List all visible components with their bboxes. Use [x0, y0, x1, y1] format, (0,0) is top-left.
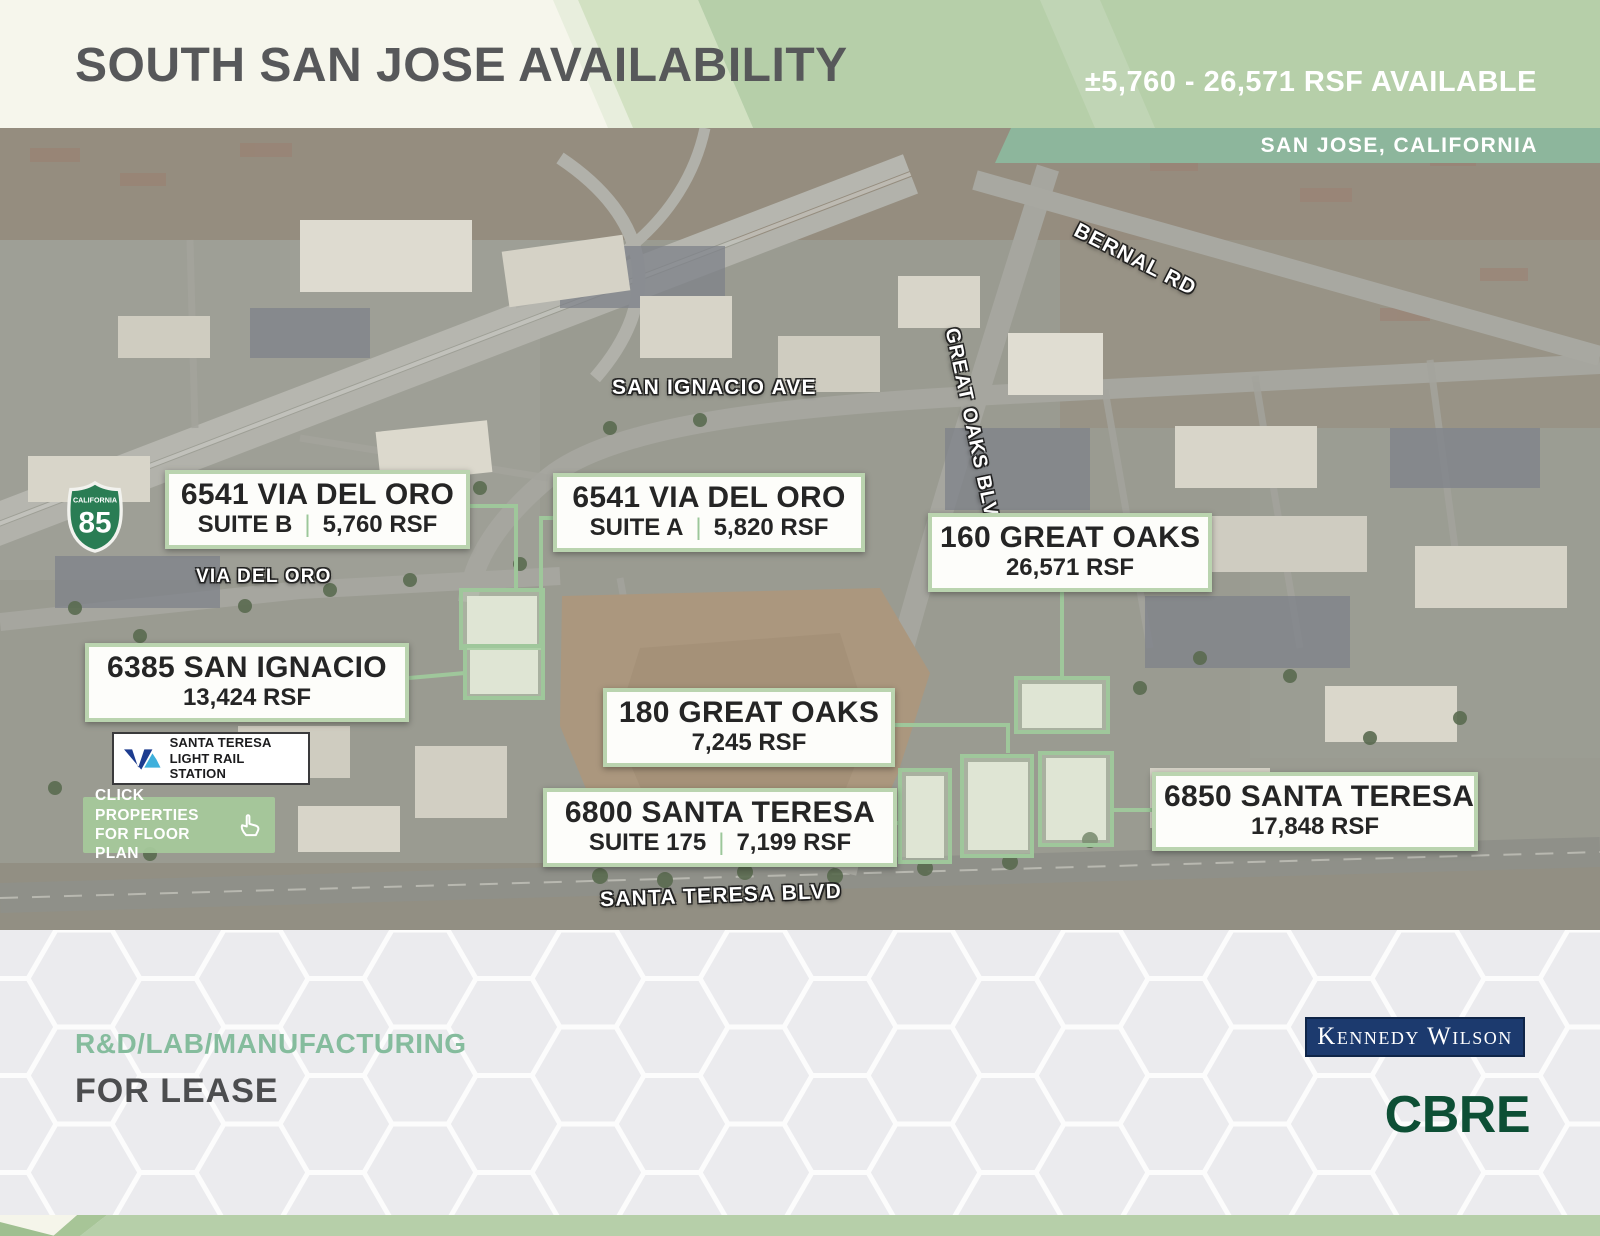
cta-line1: CLICK PROPERTIES — [95, 786, 236, 825]
property-label-6850-santa-teresa[interactable]: 6850 SANTA TERESA 17,848 RSF — [1152, 772, 1478, 851]
svg-text:CALIFORNIA: CALIFORNIA — [73, 497, 117, 505]
cta-line2: FOR FLOOR PLAN — [95, 825, 236, 864]
hand-pointer-icon — [236, 809, 265, 841]
property-label-180-great-oaks[interactable]: 180 GREAT OAKS 7,245 RSF — [603, 688, 895, 767]
aerial-map: SAN JOSE, CALIFORNIA BERNAL RD SAN IGNAC… — [0, 128, 1600, 930]
road-label-san-ignacio-ave: SAN IGNACIO AVE — [612, 376, 817, 400]
property-label-160-great-oaks[interactable]: 160 GREAT OAKS 26,571 RSF — [928, 513, 1212, 592]
divider: | — [304, 511, 310, 538]
road-label-via-del-oro: VIA DEL ORO — [196, 566, 332, 588]
property-label-6541-via-del-oro-suite-a[interactable]: 6541 VIA DEL ORO SUITE A|5,820 RSF — [553, 473, 865, 552]
footer-green-band — [0, 1215, 1600, 1236]
vta-logo — [122, 745, 163, 772]
light-rail-station-badge: SANTA TERESA LIGHT RAIL STATION — [112, 732, 310, 785]
divider: | — [695, 514, 701, 541]
header: SOUTH SAN JOSE AVAILABILITY ±5,760 - 26,… — [0, 0, 1600, 128]
station-type: LIGHT RAIL STATION — [170, 751, 300, 782]
floor-plan-cta-button[interactable]: CLICK PROPERTIES FOR FLOOR PLAN — [83, 797, 275, 853]
property-type-text: R&D/LAB/MANUFACTURING — [75, 1028, 467, 1060]
cbre-logo: CBRE — [1385, 1085, 1530, 1145]
property-label-6385-san-ignacio[interactable]: 6385 SAN IGNACIO 13,424 RSF — [85, 643, 409, 722]
location-band: SAN JOSE, CALIFORNIA — [995, 128, 1600, 163]
location-text: SAN JOSE, CALIFORNIA — [1261, 134, 1538, 158]
station-name: SANTA TERESA — [170, 735, 300, 751]
property-label-6800-santa-teresa[interactable]: 6800 SANTA TERESA SUITE 175|7,199 RSF — [543, 788, 897, 867]
availability-range: ±5,760 - 26,571 RSF AVAILABLE — [1085, 66, 1537, 99]
lease-status-text: FOR LEASE — [75, 1072, 279, 1111]
page-title: SOUTH SAN JOSE AVAILABILITY — [75, 38, 848, 93]
flyer-page: SOUTH SAN JOSE AVAILABILITY ±5,760 - 26,… — [0, 0, 1600, 1236]
highway-85-shield-icon: CALIFORNIA 85 — [62, 480, 128, 559]
svg-text:85: 85 — [78, 506, 111, 539]
property-label-6541-via-del-oro-suite-b[interactable]: 6541 VIA DEL ORO SUITE B|5,760 RSF — [165, 470, 470, 549]
kennedy-wilson-logo: Kennedy Wilson — [1305, 1017, 1525, 1057]
footer: R&D/LAB/MANUFACTURING FOR LEASE Kennedy … — [0, 930, 1600, 1236]
divider: | — [718, 829, 724, 856]
